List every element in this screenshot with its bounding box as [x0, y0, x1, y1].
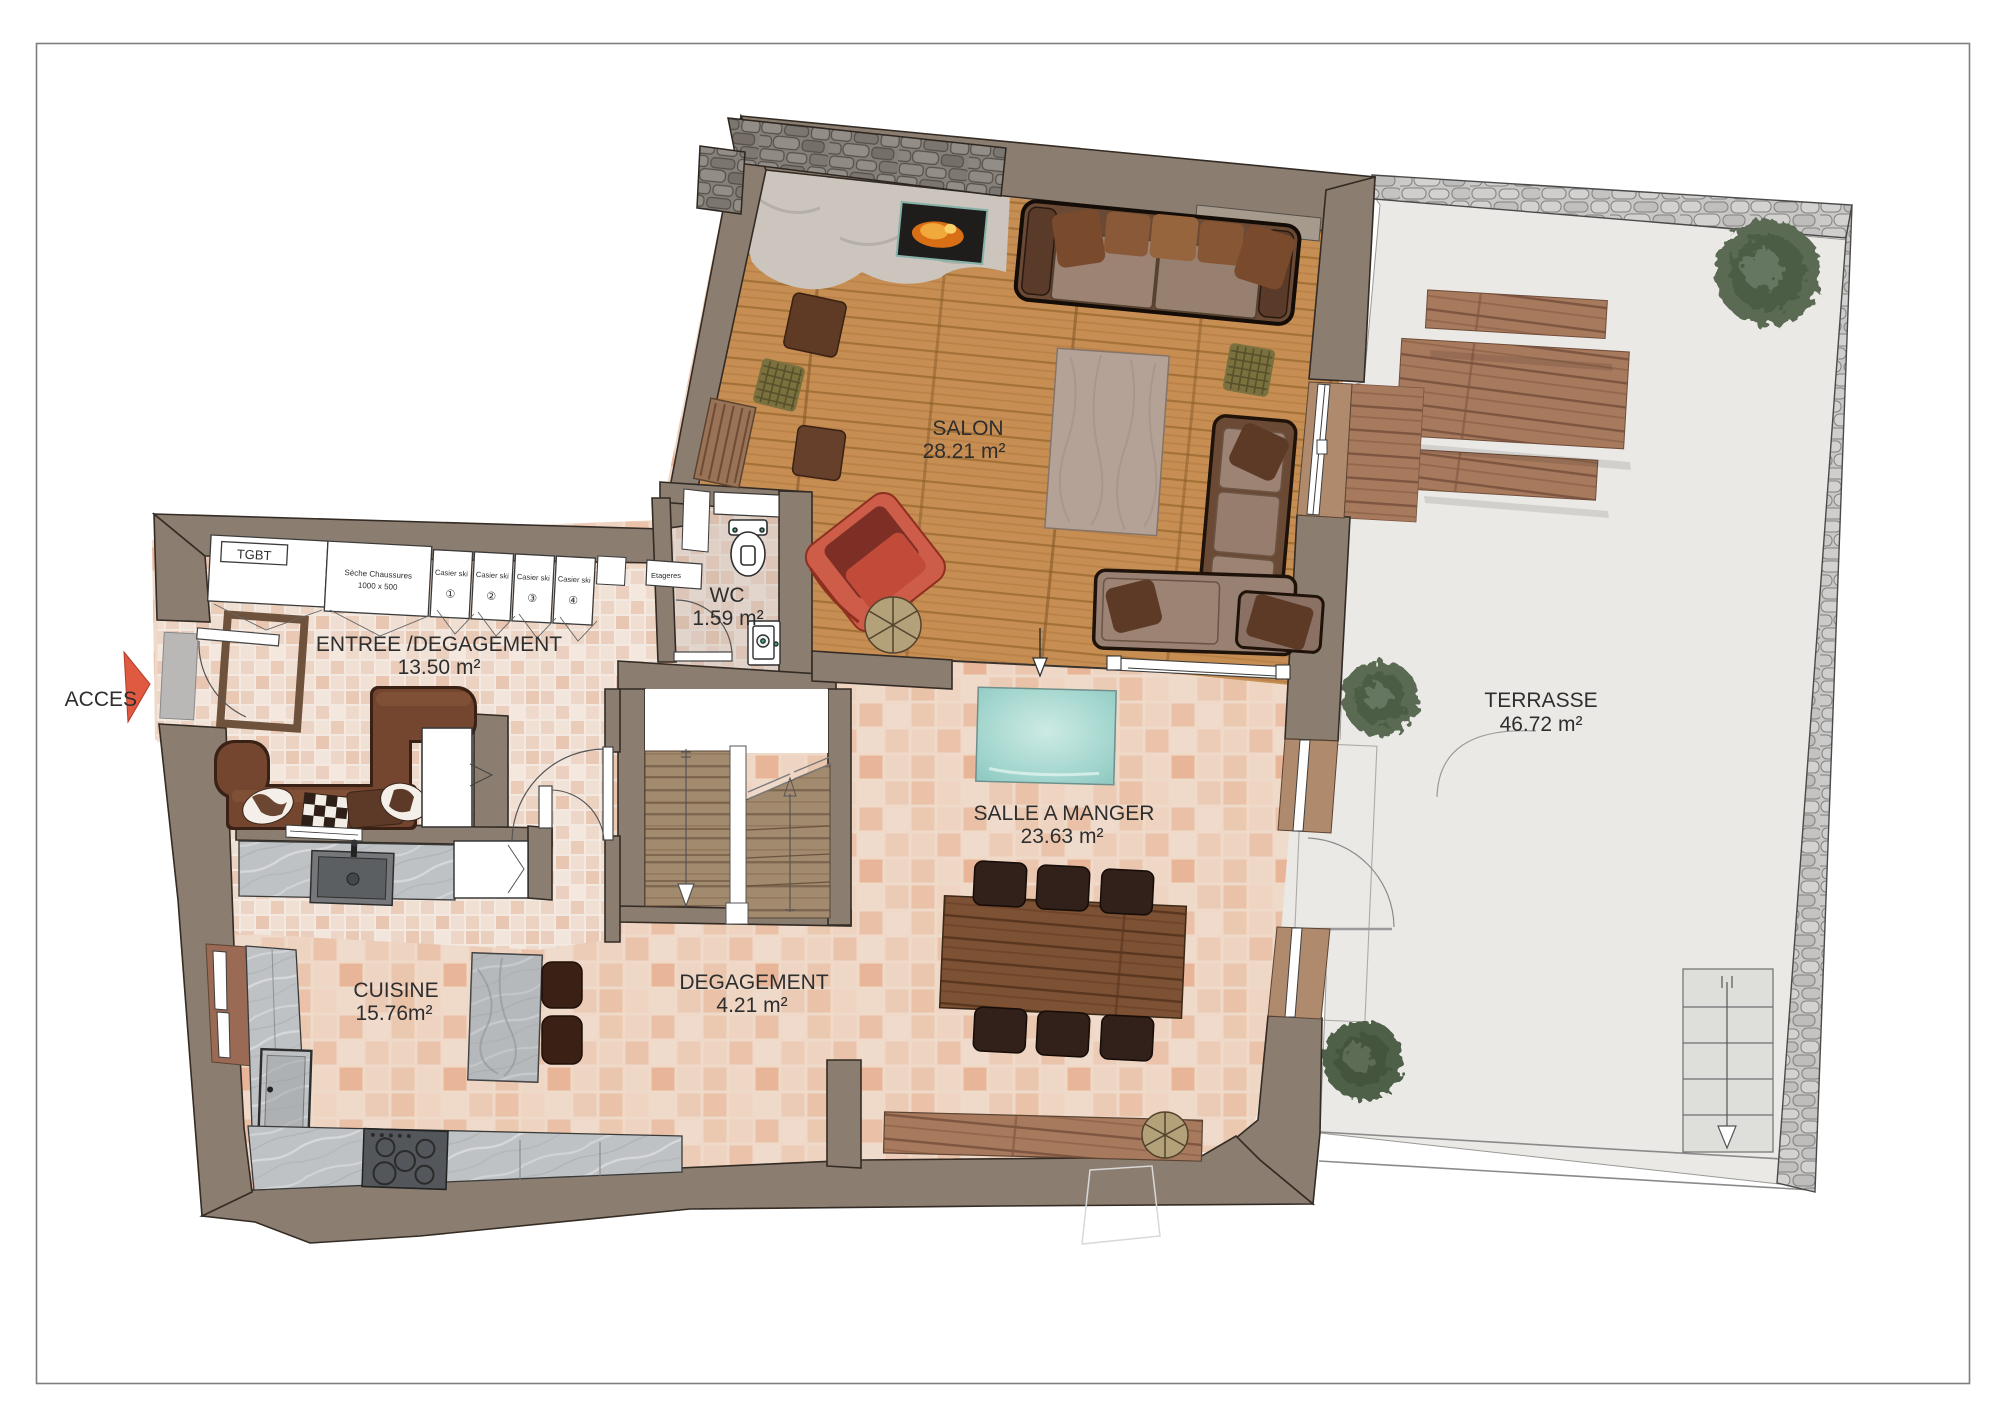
- svg-text:Casier ski: Casier ski: [517, 572, 551, 583]
- svg-text:Casier ski: Casier ski: [558, 574, 592, 585]
- svg-text:46.72 m²: 46.72 m²: [1500, 713, 1583, 736]
- svg-text:1.59 m²: 1.59 m²: [692, 607, 763, 630]
- svg-text:ACCES: ACCES: [65, 688, 137, 711]
- svg-text:TERRASSE: TERRASSE: [1484, 689, 1597, 712]
- svg-text:4.21 m²: 4.21 m²: [716, 994, 787, 1017]
- svg-text:TGBT: TGBT: [236, 546, 271, 563]
- svg-text:23.63 m²: 23.63 m²: [1021, 825, 1104, 848]
- svg-text:SALON: SALON: [932, 417, 1003, 440]
- svg-text:SALLE A MANGER: SALLE A MANGER: [974, 802, 1155, 825]
- svg-text:②: ②: [486, 590, 497, 603]
- svg-text:Casier ski: Casier ski: [476, 570, 510, 581]
- svg-text:Etageres: Etageres: [651, 571, 681, 580]
- svg-text:15.76m²: 15.76m²: [355, 1002, 432, 1025]
- svg-text:28.21 m²: 28.21 m²: [923, 440, 1006, 463]
- svg-text:CUISINE: CUISINE: [353, 979, 438, 1002]
- svg-text:③: ③: [527, 593, 538, 606]
- svg-text:ENTREE /DEGAGEMENT: ENTREE /DEGAGEMENT: [316, 633, 562, 656]
- svg-text:①: ①: [445, 588, 456, 601]
- svg-text:DEGAGEMENT: DEGAGEMENT: [679, 971, 829, 994]
- svg-text:④: ④: [568, 595, 579, 608]
- svg-text:Casier ski: Casier ski: [435, 568, 469, 579]
- svg-text:WC: WC: [710, 584, 745, 607]
- svg-text:13.50 m²: 13.50 m²: [398, 656, 481, 679]
